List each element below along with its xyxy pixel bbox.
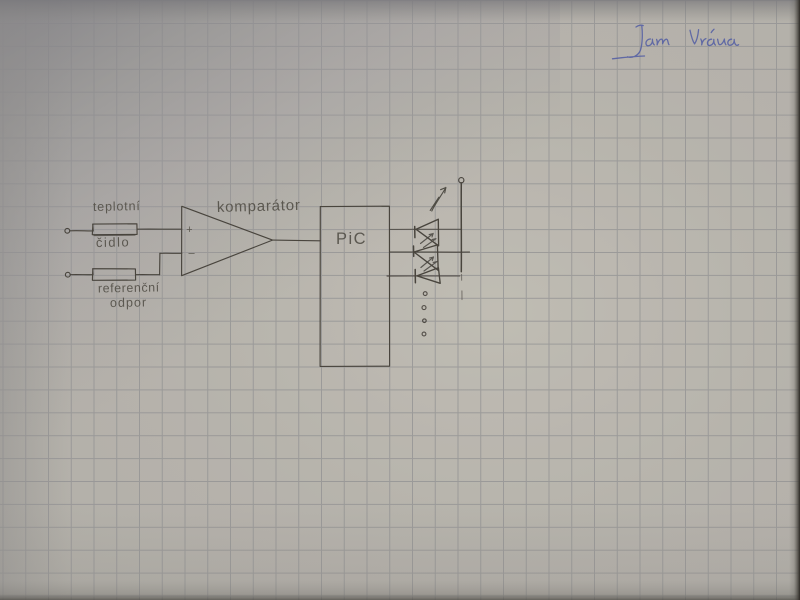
svg-text:komparátor: komparátor <box>217 197 301 216</box>
svg-text:–: – <box>189 248 196 260</box>
svg-text:čidlo: čidlo <box>96 234 131 250</box>
svg-text:odpor: odpor <box>110 295 147 310</box>
svg-text:teplotní: teplotní <box>93 199 141 214</box>
svg-text:referenční: referenční <box>98 280 160 295</box>
svg-text:PiC: PiC <box>336 230 367 248</box>
svg-text:+: + <box>186 224 192 236</box>
